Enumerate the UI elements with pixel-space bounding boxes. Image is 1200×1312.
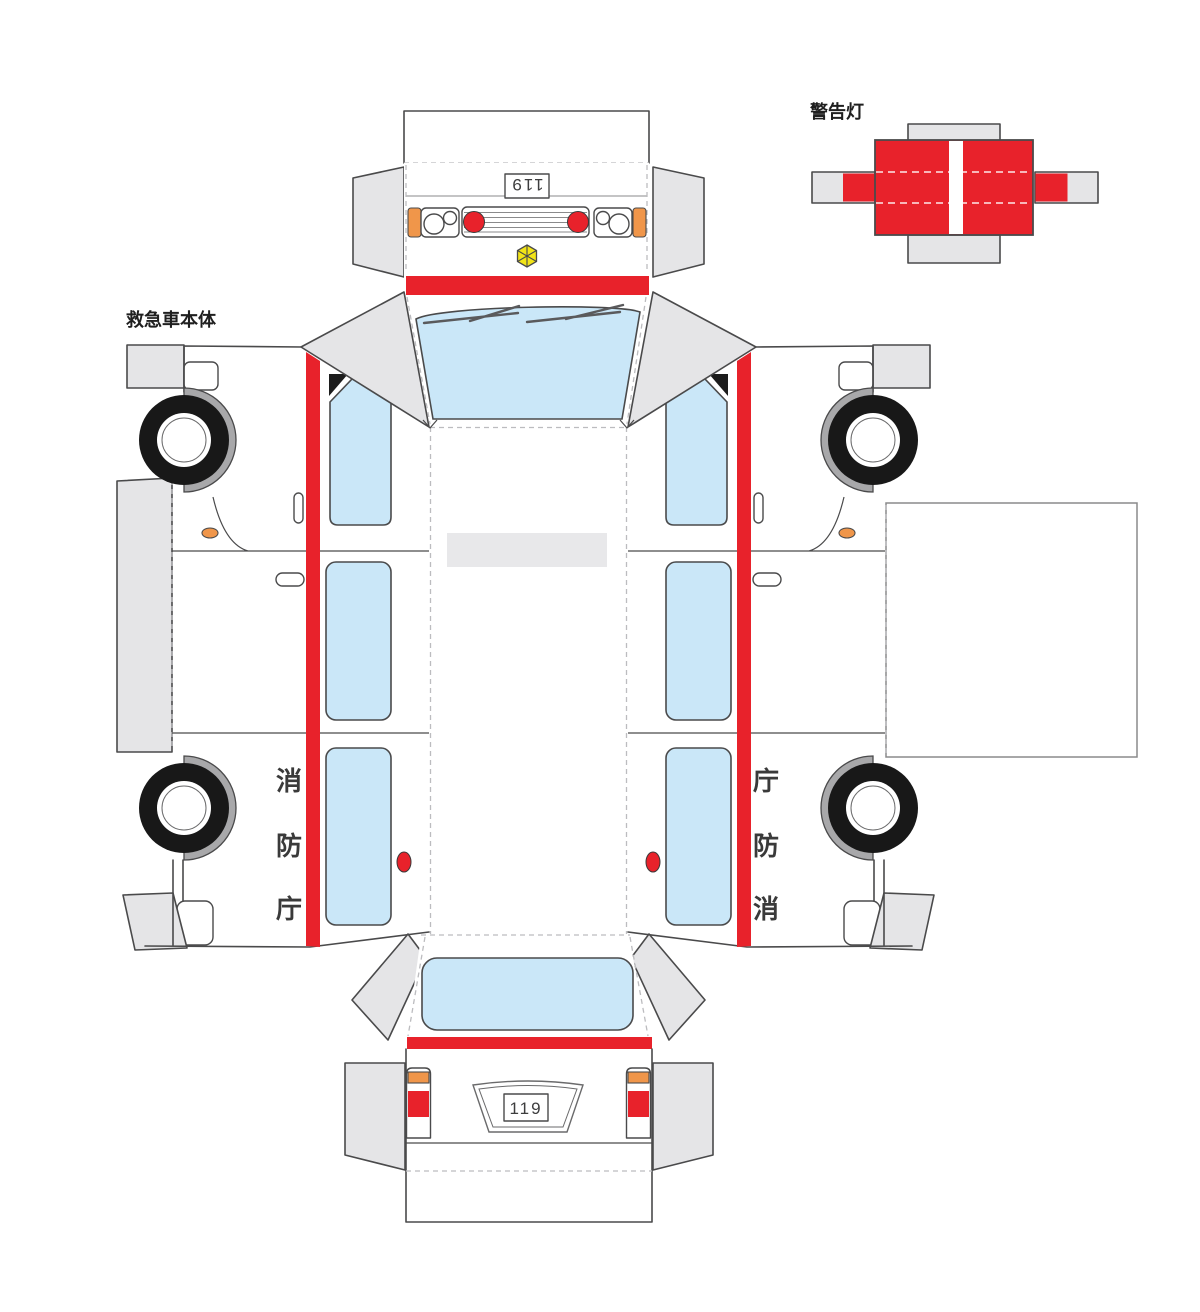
right-side-text-char-2: 防 [753,832,779,862]
rear-license-plate-area: 119 [473,1081,583,1132]
right-window-middle [666,562,731,720]
left-floor-flap [117,478,172,752]
left-rear-wheel [139,756,236,860]
papercraft-sheet: 消 防 庁 [0,0,1200,1312]
right-base-flap [886,503,1137,757]
front-right-signal [633,208,646,237]
tail-light-red [628,1091,649,1117]
left-front-wheel [139,388,236,492]
right-front-wheel [821,388,918,492]
warning-light-right-tab-red [1036,174,1068,202]
warning-light-position [447,533,607,567]
left-side-text-char-2: 防 [276,832,302,862]
right-side-text-char-1: 庁 [753,766,779,797]
front-left-tab [353,167,404,277]
right-window-front-door [666,377,727,525]
front-left-signal [408,208,421,237]
rear-left-tail-light [407,1068,431,1138]
left-slide-door-handle [276,573,304,586]
right-side-panel: 庁 防 消 [628,345,1137,950]
warning-light-center-stripe [949,141,963,234]
hub [157,781,211,835]
front-emblem-badge [518,245,537,267]
hub [157,413,211,467]
right-window-rear [666,748,731,925]
right-cab-corner [839,362,873,390]
warning-light-top-tab [908,124,1000,141]
left-window-rear [326,748,391,925]
rear-left-side-flap [345,1063,405,1170]
front-fog-light-right [568,212,589,233]
rear-license-plate-number: 119 [509,1099,542,1118]
rear-right-tail-light [627,1068,651,1138]
warning-light-bottom-tab [908,235,1000,263]
front-license-plate-number: 119 [510,175,543,194]
front-left-headlight-small [444,212,457,225]
left-side-text-char-3: 庁 [276,894,302,925]
front-fog-light-left [464,212,485,233]
front-top-flap [404,111,649,163]
roof-panel [421,420,634,935]
left-side-text-char-1: 消 [276,767,302,797]
rear-window [422,958,633,1030]
tail-light-amber [628,1072,649,1083]
left-turn-signal [202,528,218,538]
tail-light-amber [408,1072,429,1083]
front-left-headlight-large [424,214,444,234]
right-side-marker-light [646,852,660,872]
front-red-stripe [406,276,649,295]
left-front-door-handle [294,493,303,523]
left-red-stripe [306,352,320,947]
front-bumper [408,207,646,237]
left-cab-corner [184,362,218,390]
left-window-front-door [330,377,391,525]
warning-light-left-tab-red [843,174,875,202]
ambulance-body-label: 救急車本体 [126,309,217,331]
front-right-tab [653,167,704,277]
rear-panel [406,1049,652,1222]
rear-red-stripe [407,1037,652,1049]
tail-light-red [408,1091,429,1117]
right-rear-wheel [821,756,918,860]
hub [846,781,900,835]
rear-right-side-flap [653,1063,713,1170]
right-red-stripe [737,352,751,947]
right-slide-door-handle [753,573,781,586]
left-window-middle [326,562,391,720]
windshield [416,307,640,419]
left-side-panel: 消 防 庁 [117,345,429,950]
left-side-marker-light [397,852,411,872]
right-turn-signal [839,528,855,538]
right-front-tab [873,345,930,388]
left-front-tab [127,345,184,388]
ambulance-papercraft-diagram: 消 防 庁 [0,0,1200,1312]
front-right-headlight-small [597,212,610,225]
warning-light-piece [812,124,1098,263]
roof-fold-lines [421,427,630,935]
right-front-door-handle [754,493,763,523]
warning-light-label: 警告灯 [810,101,864,123]
hub [846,413,900,467]
right-side-text-char-3: 消 [753,895,779,925]
front-right-headlight-large [609,214,629,234]
